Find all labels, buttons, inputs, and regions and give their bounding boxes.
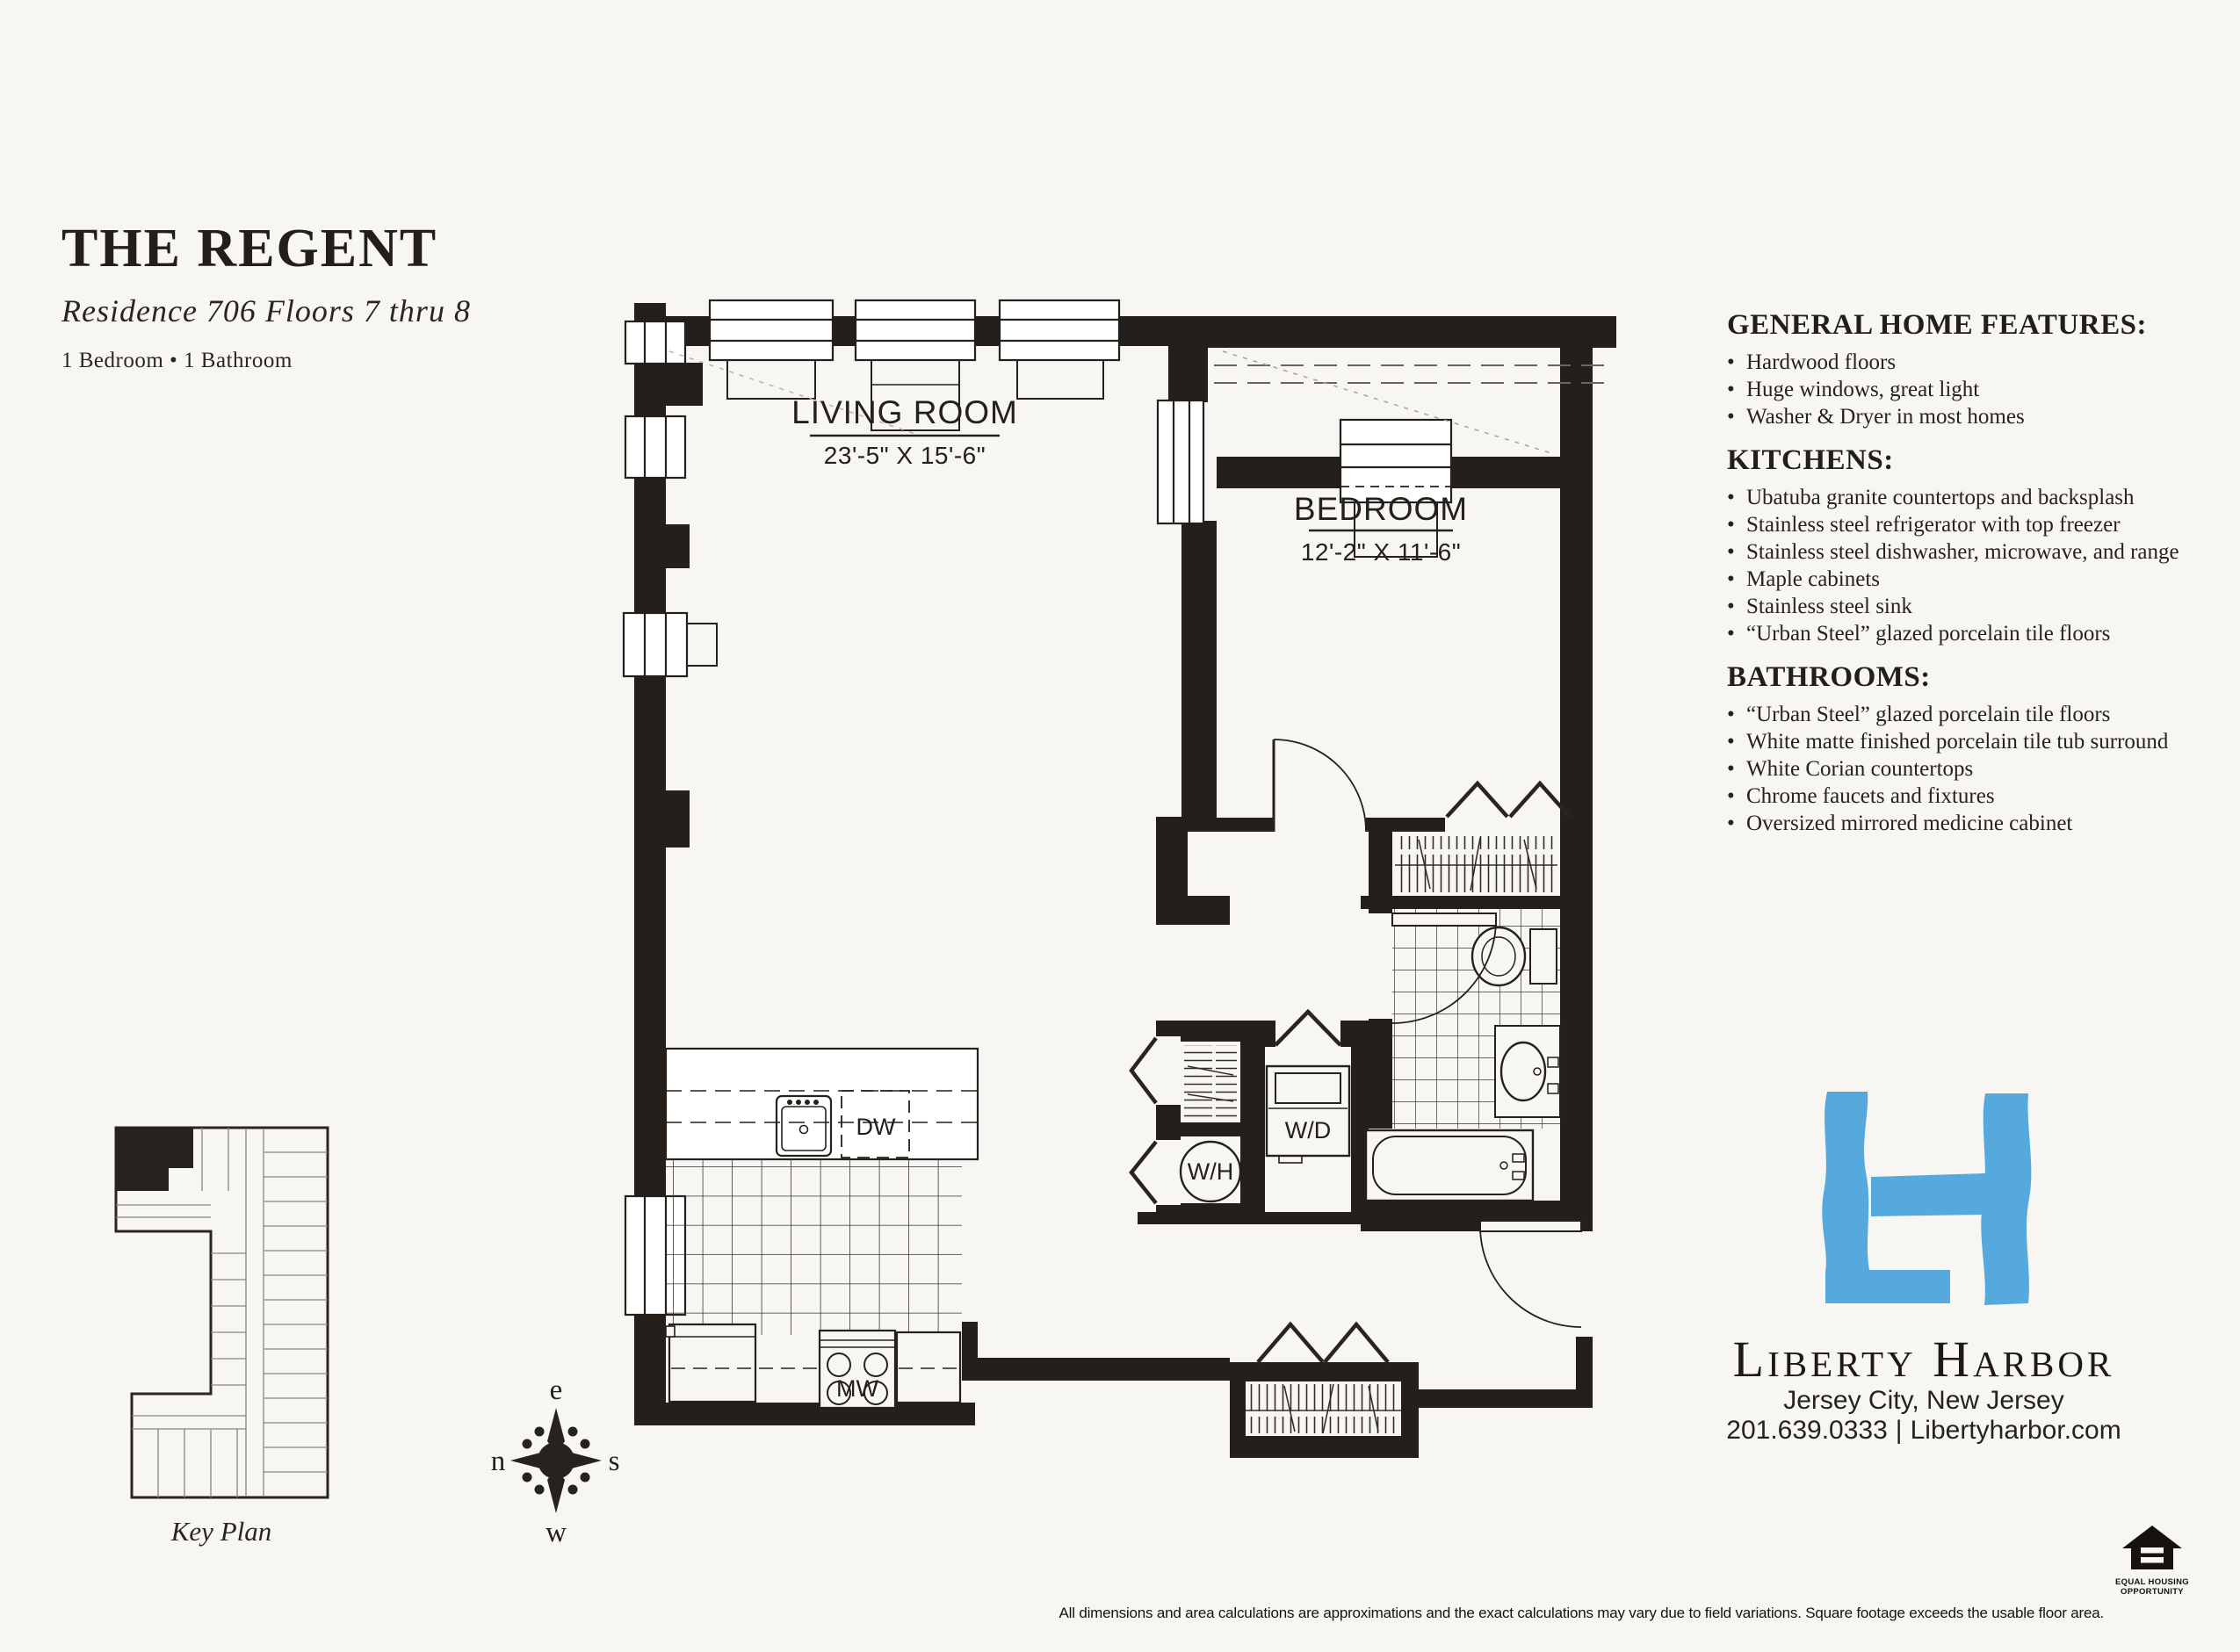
bullet-icon: •: [1727, 484, 1746, 511]
window-left-2: [625, 416, 685, 478]
bedroom-dims: 12'-2" X 11'-6": [1301, 538, 1461, 566]
microwave-label: MW: [836, 1375, 878, 1402]
window-bedroom: [1340, 420, 1451, 557]
features-heading-kitchens: KITCHENS:: [1727, 444, 2240, 477]
bullet-icon: •: [1727, 566, 1746, 593]
feature-item: •Oversized mirrored medicine cabinet: [1727, 810, 2240, 837]
bullet-icon: •: [1727, 783, 1746, 810]
dishwasher-label: DW: [856, 1114, 896, 1140]
compass-rose: e n s w: [486, 1380, 626, 1547]
brand-city: Jersey City, New Jersey: [1669, 1386, 2179, 1416]
page-title: THE REGENT: [61, 218, 471, 280]
feature-item: •Stainless steel refrigerator with top f…: [1727, 511, 2240, 538]
key-plan-label: Key Plan: [134, 1516, 309, 1547]
contact-separator: |: [1896, 1416, 1903, 1445]
brand-phone-number: 201.639.0333: [1726, 1416, 1888, 1445]
bullet-icon: •: [1727, 538, 1746, 566]
brand-name: Liberty Harbor: [1669, 1330, 2179, 1389]
bullet-icon: •: [1727, 755, 1746, 783]
feature-item: •Stainless steel dishwasher, microwave, …: [1727, 538, 2240, 566]
brand-website: Libertyharbor.com: [1911, 1416, 2121, 1445]
bullet-icon: •: [1727, 701, 1746, 728]
key-plan: [114, 1126, 329, 1499]
window-left-3: [624, 613, 717, 676]
feature-item: •Maple cabinets: [1727, 566, 2240, 593]
logo-h-crossbar: [1871, 1173, 1985, 1216]
linen-closet: [1184, 1045, 1237, 1119]
feature-item: •White Corian countertops: [1727, 755, 2240, 783]
bullet-icon: •: [1727, 593, 1746, 620]
bullet-icon: •: [1727, 511, 1746, 538]
title-block: THE REGENT Residence 706 Floors 7 thru 8…: [61, 218, 471, 373]
feature-item: •Huge windows, great light: [1727, 376, 2240, 403]
bedroom-label: BEDROOM: [1294, 491, 1468, 527]
water-heater-label: W/H: [1188, 1158, 1233, 1185]
equal-housing-block: EQUAL HOUSING OPPORTUNITY: [2110, 1525, 2194, 1597]
living-room-dims: 23'-5" X 15'-6": [824, 442, 986, 469]
feature-item: •Stainless steel sink: [1727, 593, 2240, 620]
compass-west-label: w: [546, 1517, 567, 1547]
features-panel: GENERAL HOME FEATURES: •Hardwood floors …: [1727, 309, 2240, 837]
features-heading-general: GENERAL HOME FEATURES:: [1727, 309, 2240, 342]
bullet-icon: •: [1727, 376, 1746, 403]
bedroom-door: [1274, 739, 1366, 832]
feature-item: •White matte finished porcelain tile tub…: [1727, 728, 2240, 755]
window-left-1: [625, 321, 685, 364]
features-heading-bathrooms: BATHROOMS:: [1727, 661, 2240, 694]
toilet: [1472, 927, 1557, 985]
feature-item: •Washer & Dryer in most homes: [1727, 403, 2240, 430]
feature-item: •“Urban Steel” glazed porcelain tile flo…: [1727, 701, 2240, 728]
washer-dryer-label: W/D: [1285, 1117, 1331, 1143]
feature-item: •“Urban Steel” glazed porcelain tile flo…: [1727, 620, 2240, 647]
refrigerator: [666, 1324, 755, 1402]
feature-item: •Ubatuba granite countertops and backspl…: [1727, 484, 2240, 511]
window-living-east: [1158, 400, 1203, 523]
bullet-icon: •: [1727, 349, 1746, 376]
feature-item: •Chrome faucets and fixtures: [1727, 783, 2240, 810]
disclaimer-text: All dimensions and area calculations are…: [966, 1605, 2104, 1622]
bathroom: [1366, 909, 1560, 1201]
compass-north-label: n: [491, 1446, 506, 1477]
liberty-harbor-logo: [1810, 1092, 2047, 1307]
living-room-label: LIVING ROOM: [791, 394, 1018, 430]
feature-item: •Hardwood floors: [1727, 349, 2240, 376]
kitchen: DW MW: [666, 1049, 978, 1408]
bullet-icon: •: [1727, 403, 1746, 430]
floor-plan: W/H W/D: [615, 290, 1616, 1458]
key-plan-unit-highlight: [116, 1128, 193, 1191]
equal-housing-icon: [2121, 1525, 2183, 1570]
bullet-icon: •: [1727, 728, 1746, 755]
eho-line1: EQUAL HOUSING: [2110, 1577, 2194, 1587]
bed-bath-count: 1 Bedroom • 1 Bathroom: [61, 349, 471, 373]
window-top-1: [710, 300, 833, 399]
eho-line2: OPPORTUNITY: [2110, 1587, 2194, 1597]
bullet-icon: •: [1727, 810, 1746, 837]
window-top-3: [1000, 300, 1119, 399]
bullet-icon: •: [1727, 620, 1746, 647]
compass-south-label: s: [609, 1446, 620, 1477]
bedroom-closet: [1395, 783, 1570, 892]
residence-subtitle: Residence 706 Floors 7 thru 8: [61, 292, 471, 329]
kitchen-tile-floor: [666, 1159, 962, 1335]
logo-h-stem: [1981, 1093, 2031, 1305]
entry-closet: [1249, 1384, 1398, 1433]
bathtub: [1366, 1130, 1533, 1201]
bathroom-sink: [1495, 1026, 1560, 1117]
brand-contact: 201.639.0333|Libertyharbor.com: [1669, 1416, 2179, 1446]
compass-east-label: e: [550, 1380, 563, 1406]
